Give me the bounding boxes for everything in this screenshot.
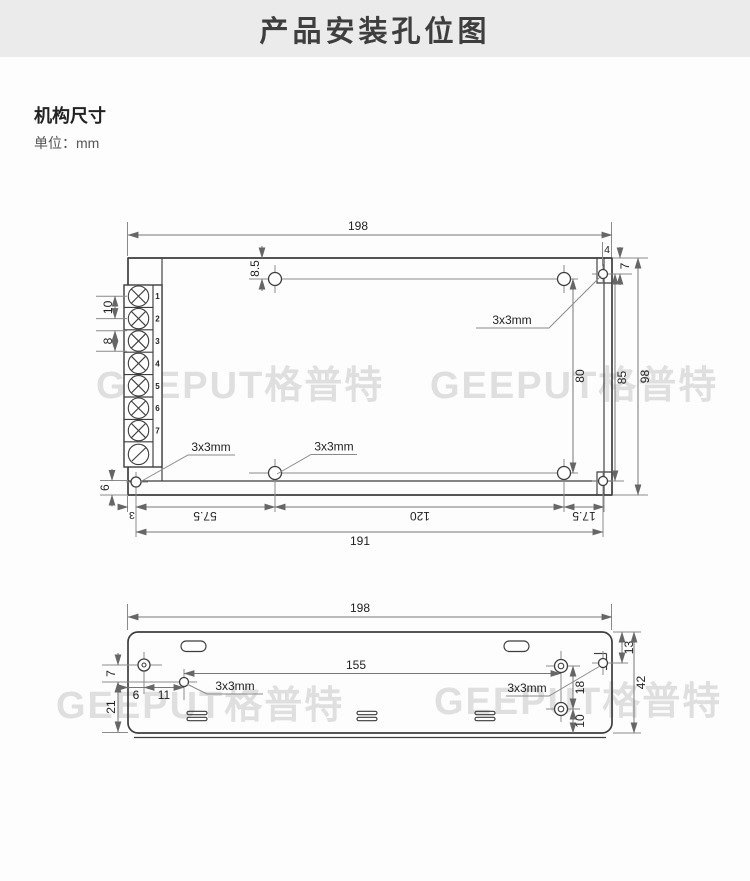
- mounting-hole: [269, 273, 282, 286]
- dim-top-7: 7: [618, 262, 632, 269]
- hole-size-label: 3x3mm: [507, 681, 546, 695]
- dim-edge-3: 3: [129, 509, 135, 521]
- dim-span-155: 155: [346, 658, 366, 672]
- terminal-number: 3: [155, 337, 160, 346]
- dim-right-10: 10: [573, 714, 587, 728]
- dim-offset-4: 4: [604, 244, 610, 256]
- dim-left-11: 11: [158, 688, 171, 702]
- dim-span-17-5: 17.5: [572, 509, 596, 523]
- mounting-hole: [555, 660, 568, 673]
- dim-left-6: 6: [133, 688, 140, 702]
- mounting-hole: [138, 659, 150, 671]
- dim-width-198: 198: [348, 219, 368, 233]
- dim-terminal-dia-8: 8: [101, 337, 115, 344]
- mounting-hole: [599, 477, 608, 486]
- dim-height-42: 42: [634, 676, 648, 690]
- hole-size-label: 3x3mm: [191, 440, 230, 454]
- terminal-number: 5: [155, 382, 160, 391]
- dim-width-198: 198: [350, 601, 370, 615]
- mounting-hole: [180, 678, 189, 687]
- mounting-hole: [555, 703, 568, 716]
- dim-hole-span-80: 80: [573, 369, 587, 383]
- terminal-number: 2: [155, 315, 160, 324]
- mounting-hole: [558, 273, 571, 286]
- dim-total-191: 191: [350, 534, 370, 548]
- hole-size-label: 3x3mm: [215, 679, 254, 693]
- drawing-canvas: GEEPUT格普特 GEEPUT格普特 GEEPUT格普特 GEEPUT格普特: [0, 0, 750, 881]
- page: 产品安装孔位图 机构尺寸 单位：mm GEEPUT格普特 GEEPUT格普特 G…: [0, 0, 750, 881]
- dim-left-21: 21: [104, 700, 118, 714]
- terminal-number: 1: [155, 292, 160, 301]
- dim-right-18: 18: [573, 681, 587, 695]
- dim-hole-offset-8-5: 8.5: [248, 260, 262, 277]
- terminal-number: 6: [155, 404, 160, 413]
- keyhole-slot: [181, 641, 206, 652]
- hole-size-callout: 3x3mm: [277, 440, 357, 475]
- hole-size-callout: 3x3mm: [476, 276, 601, 328]
- dim-span-57-5: 57.5: [193, 509, 217, 523]
- dim-lip-6: 6: [98, 484, 112, 491]
- terminal-block: 1 2 3 4 5 6 7: [124, 285, 162, 467]
- dim-left-7: 7: [104, 670, 118, 677]
- mounting-hole: [558, 467, 571, 480]
- dim-hole-span-85: 85: [615, 371, 629, 385]
- mounting-hole: [131, 477, 141, 487]
- dim-height-98: 98: [638, 370, 652, 384]
- terminal-number: 4: [155, 359, 160, 368]
- dim-span-120: 120: [410, 509, 430, 523]
- dim-terminal-pitch-10: 10: [101, 300, 115, 314]
- keyhole-slot: [504, 641, 529, 652]
- terminal-number: 7: [155, 427, 160, 436]
- hole-size-label: 3x3mm: [314, 440, 353, 454]
- hole-size-label: 3x3mm: [492, 313, 531, 327]
